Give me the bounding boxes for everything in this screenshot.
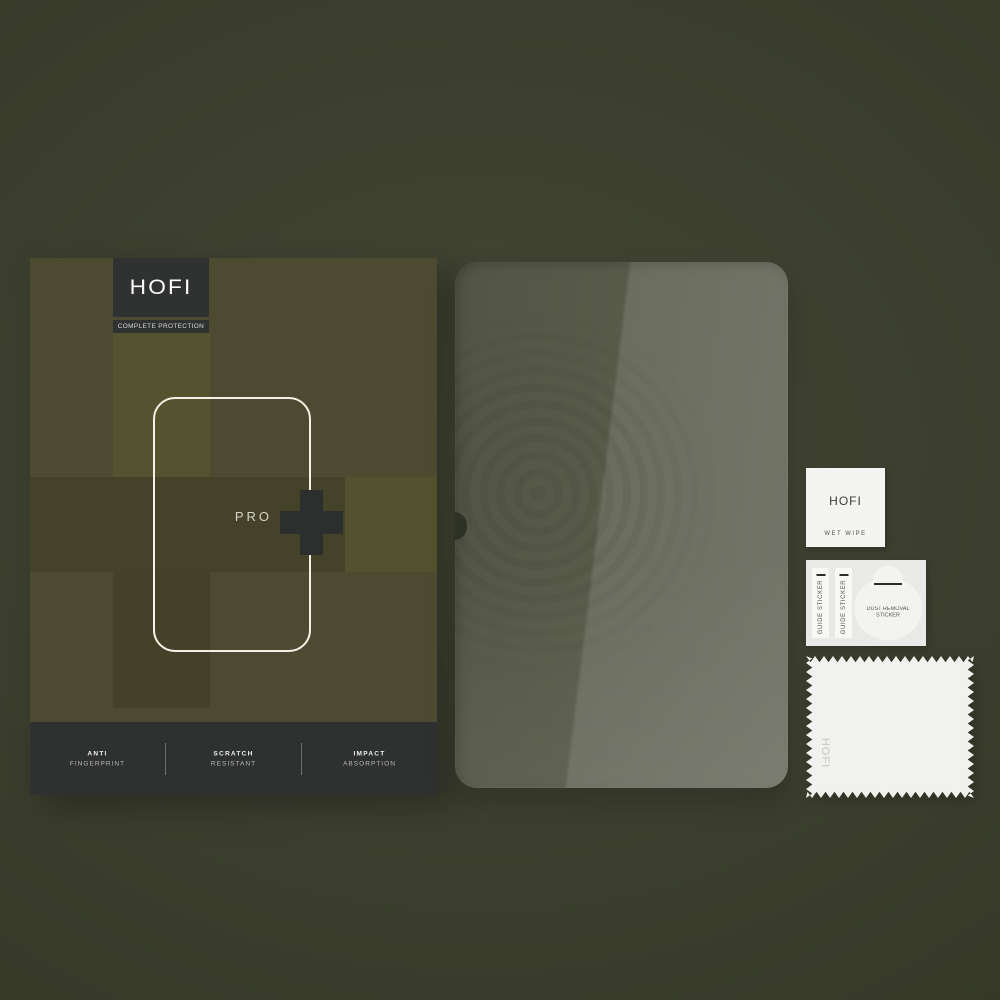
dash-mark	[874, 583, 902, 585]
feature-impact-absorption: IMPACT ABSORPTION	[302, 749, 437, 768]
guide-sticker-label: GUIDE STICKER	[841, 579, 847, 633]
guide-sticker: GUIDE STICKER	[812, 568, 829, 638]
dash-mark	[816, 574, 825, 576]
feature-scratch-resistant: SCRATCH RESISTANT	[166, 749, 301, 768]
features-bar: ANTI FINGERPRINT SCRATCH RESISTANT IMPAC…	[30, 722, 437, 795]
wet-wipe-packet: HOFI WET WIPE	[806, 468, 885, 547]
feature-subtitle: FINGERPRINT	[42, 760, 153, 767]
product-photo: HOFI COMPLETE PROTECTION PRO ANTI FINGER…	[0, 0, 1000, 1000]
wet-wipe-brand: HOFI	[806, 494, 885, 508]
feature-title: IMPACT	[314, 750, 425, 757]
packaging-box: HOFI COMPLETE PROTECTION PRO ANTI FINGER…	[30, 258, 437, 795]
guide-sticker-label: GUIDE STICKER	[818, 579, 824, 633]
camera-notch-cutout	[454, 512, 467, 540]
glass-screen-protector	[455, 262, 788, 788]
tagline-bar: COMPLETE PROTECTION	[113, 320, 209, 333]
dust-removal-label: DUST REMOVAL STICKER	[855, 607, 921, 620]
microfiber-cloth: HOFI	[806, 656, 974, 798]
plus-horizontal-bar	[280, 511, 343, 534]
plus-icon	[280, 490, 343, 555]
dust-removal-line2: STICKER	[855, 613, 921, 619]
sticker-sheet: GUIDE STICKER GUIDE STICKER DUST REMOVAL…	[806, 560, 926, 646]
wet-wipe-label: WET WIPE	[812, 531, 879, 537]
dash-mark	[839, 574, 848, 576]
cloth-wrapper: HOFI	[806, 656, 974, 798]
feature-subtitle: ABSORPTION	[314, 760, 425, 767]
feature-subtitle: RESISTANT	[178, 760, 289, 767]
feature-title: ANTI	[42, 750, 153, 757]
feature-title: SCRATCH	[178, 750, 289, 757]
model-label: PRO	[180, 510, 272, 523]
guide-sticker: GUIDE STICKER	[835, 568, 852, 638]
brand-logo: HOFI	[130, 276, 193, 300]
box-pattern-horizontal-light	[345, 477, 437, 572]
dust-removal-sticker: DUST REMOVAL STICKER	[852, 566, 924, 642]
tagline-text: COMPLETE PROTECTION	[118, 323, 204, 329]
cloth-brand: HOFI	[819, 738, 831, 768]
feature-anti-fingerprint: ANTI FINGERPRINT	[30, 749, 165, 768]
brand-logo-block: HOFI	[113, 258, 209, 317]
